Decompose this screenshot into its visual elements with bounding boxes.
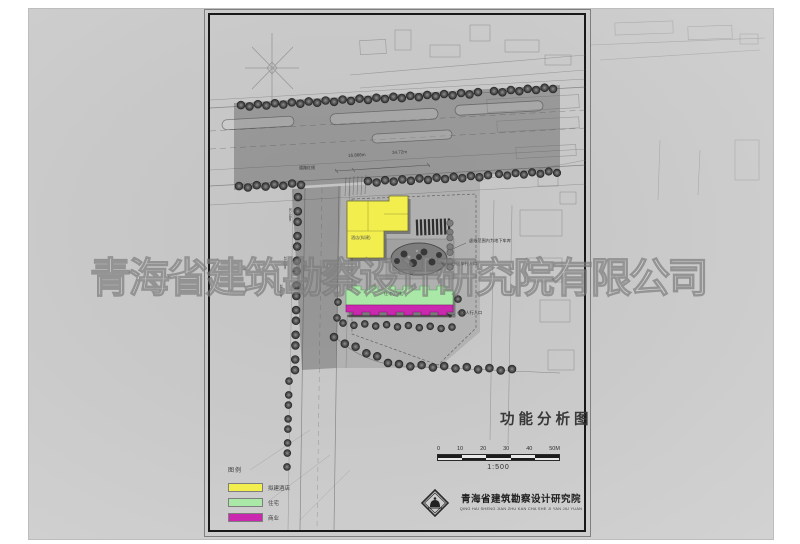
scale-tick: 50M bbox=[549, 446, 560, 452]
tree-icon bbox=[341, 340, 349, 348]
tree-icon bbox=[364, 96, 372, 104]
hotel-label: 酒店(拟建) bbox=[351, 236, 371, 240]
compass-icon bbox=[245, 33, 299, 103]
tree-icon bbox=[406, 362, 414, 370]
tree-icon bbox=[398, 175, 406, 183]
tree-icon bbox=[383, 321, 390, 328]
tree-icon bbox=[458, 174, 466, 182]
tree-icon bbox=[254, 100, 262, 108]
legend-item: 商业 bbox=[228, 513, 290, 522]
tree-icon bbox=[484, 171, 492, 179]
scale-tick: 0 bbox=[437, 446, 440, 452]
legend-label: 拟建酒店 bbox=[268, 484, 290, 492]
scale-segment bbox=[462, 458, 486, 461]
tree-icon bbox=[381, 95, 389, 103]
tree-icon bbox=[398, 94, 406, 102]
tree-icon bbox=[284, 450, 291, 457]
tree-icon bbox=[449, 324, 456, 331]
tree-icon bbox=[389, 93, 397, 101]
tree-icon bbox=[447, 220, 453, 226]
tree-icon bbox=[545, 168, 553, 176]
tree-icon bbox=[246, 102, 254, 110]
tree-icon bbox=[507, 86, 515, 94]
tree-icon bbox=[415, 175, 423, 183]
tree-icon bbox=[350, 322, 357, 329]
tree-icon bbox=[524, 85, 532, 93]
tree-icon bbox=[440, 90, 448, 98]
tree-icon bbox=[297, 181, 305, 189]
tree-icon bbox=[291, 366, 299, 374]
tree-icon bbox=[463, 363, 471, 371]
tree-icon bbox=[244, 184, 252, 192]
legend-swatch bbox=[228, 483, 263, 492]
scale-segment bbox=[535, 458, 559, 461]
scale-ratio: 1:500 bbox=[437, 464, 560, 471]
institute-name: 青海省建筑勘察设计研究院 bbox=[456, 495, 586, 506]
tree-icon bbox=[515, 87, 523, 95]
tree-icon bbox=[537, 170, 545, 178]
tree-icon bbox=[390, 178, 398, 186]
tree-icon bbox=[452, 364, 460, 372]
tree-icon bbox=[474, 365, 482, 373]
legend-swatch bbox=[228, 513, 263, 522]
tree-icon bbox=[293, 232, 301, 240]
legend: 图例 拟建酒店住宅商业 bbox=[228, 465, 290, 528]
tree-icon bbox=[373, 352, 381, 360]
tree-icon bbox=[296, 100, 304, 108]
parking-bars bbox=[416, 218, 451, 235]
tree-icon bbox=[490, 87, 498, 95]
tree-icon bbox=[294, 218, 302, 226]
tree-icon bbox=[292, 331, 300, 339]
legend-items: 拟建酒店住宅商业 bbox=[228, 483, 290, 522]
tree-icon bbox=[352, 343, 360, 351]
scale-bar-graphic bbox=[437, 454, 560, 461]
tree-icon bbox=[532, 86, 540, 94]
tree-icon bbox=[459, 309, 466, 316]
tree-icon bbox=[292, 306, 300, 314]
tree-icon bbox=[271, 99, 279, 107]
tree-icon bbox=[415, 93, 423, 101]
tree-icon bbox=[418, 361, 426, 369]
tree-icon bbox=[416, 324, 423, 331]
scale-tick-labels: 01020304050M bbox=[437, 446, 560, 452]
tree-icon bbox=[284, 426, 291, 433]
tree-icon bbox=[334, 314, 341, 321]
scale-tick: 20 bbox=[480, 446, 486, 452]
company-watermark: 青海省建筑勘察设计研究院有限公司 bbox=[90, 244, 730, 304]
legend-label: 商业 bbox=[268, 514, 279, 522]
tree-icon bbox=[395, 360, 403, 368]
tree-icon bbox=[235, 182, 243, 190]
tree-icon bbox=[362, 349, 370, 357]
scale-tick: 40 bbox=[526, 446, 532, 452]
tree-icon bbox=[262, 102, 270, 110]
tree-icon bbox=[279, 101, 287, 109]
legend-label: 住宅 bbox=[268, 499, 279, 507]
tree-icon bbox=[440, 362, 448, 370]
tree-icon bbox=[330, 333, 338, 341]
tree-icon bbox=[253, 181, 261, 189]
tree-icon bbox=[294, 193, 302, 201]
tree-icon bbox=[512, 169, 520, 177]
scale-tick: 10 bbox=[457, 446, 463, 452]
tree-icon bbox=[423, 91, 431, 99]
tree-icon bbox=[286, 378, 293, 385]
institute-pinyin: QING HAI SHENG JIAN ZHU KAN CHA SHE JI Y… bbox=[456, 507, 586, 511]
tree-icon bbox=[288, 98, 296, 106]
tree-icon bbox=[407, 177, 415, 185]
tree-icon bbox=[356, 95, 364, 103]
tree-icon bbox=[429, 363, 437, 371]
tree-icon bbox=[372, 94, 380, 102]
tree-icon bbox=[294, 207, 302, 215]
legend-title: 图例 bbox=[228, 465, 290, 474]
tree-icon bbox=[467, 172, 475, 180]
tree-icon bbox=[549, 85, 557, 93]
tree-icon bbox=[553, 169, 561, 177]
tree-icon bbox=[262, 183, 270, 191]
tree-icon bbox=[449, 91, 457, 99]
legend-item: 住宅 bbox=[228, 498, 290, 507]
tree-icon bbox=[424, 176, 432, 184]
tree-icon bbox=[372, 323, 379, 330]
tree-icon bbox=[373, 179, 381, 187]
tree-icon bbox=[284, 439, 291, 446]
tree-icon bbox=[498, 88, 506, 96]
tree-icon bbox=[508, 365, 516, 373]
legend-swatch bbox=[228, 498, 263, 507]
tree-icon bbox=[330, 98, 338, 106]
scale-bar: 01020304050M 1:500 bbox=[437, 446, 560, 471]
scanned-drawing-page: 道路红线16.866m34.72m50.98m15.00m16.00m虚线范围内… bbox=[0, 0, 800, 544]
tree-icon bbox=[285, 391, 292, 398]
tree-icon bbox=[313, 99, 321, 107]
tree-icon bbox=[285, 402, 292, 409]
tree-icon bbox=[270, 180, 278, 188]
tree-icon bbox=[433, 174, 441, 182]
institute-logo-icon bbox=[420, 488, 450, 518]
tree-icon bbox=[347, 97, 355, 105]
legend-item: 拟建酒店 bbox=[228, 483, 290, 492]
tree-icon bbox=[485, 364, 493, 372]
scale-segment bbox=[438, 458, 462, 461]
tree-icon bbox=[405, 322, 412, 329]
institute-title-block: 青海省建筑勘察设计研究院 QING HAI SHENG JIAN ZHU KAN… bbox=[420, 488, 588, 518]
tree-icon bbox=[279, 182, 287, 190]
tree-icon bbox=[541, 84, 549, 92]
tree-icon bbox=[528, 169, 536, 177]
tree-icon bbox=[384, 359, 392, 367]
tree-icon bbox=[447, 235, 453, 241]
tree-icon bbox=[339, 96, 347, 104]
tree-icon bbox=[322, 97, 330, 105]
tree-icon bbox=[305, 97, 313, 105]
tree-icon bbox=[292, 317, 300, 325]
tree-icon bbox=[361, 320, 368, 327]
tree-icon bbox=[475, 173, 483, 181]
scale-segment bbox=[511, 458, 535, 461]
tree-icon bbox=[520, 171, 528, 179]
tree-icon bbox=[291, 341, 299, 349]
tree-icon bbox=[466, 90, 474, 98]
tree-icon bbox=[291, 356, 299, 364]
tree-icon bbox=[441, 175, 449, 183]
scale-tick: 30 bbox=[503, 446, 509, 452]
tree-icon bbox=[406, 92, 414, 100]
tree-icon bbox=[497, 366, 505, 374]
tree-icon bbox=[474, 88, 482, 96]
tree-icon bbox=[394, 323, 401, 330]
tree-icon bbox=[364, 177, 372, 185]
tree-icon bbox=[432, 92, 440, 100]
tree-icon bbox=[504, 172, 512, 180]
drawing-title: 功能分析图 bbox=[500, 408, 593, 429]
tree-icon bbox=[495, 170, 503, 178]
scale-segment bbox=[486, 458, 510, 461]
tree-icon bbox=[285, 415, 292, 422]
tree-icon bbox=[450, 173, 458, 181]
tree-icon bbox=[381, 176, 389, 184]
tree-icon bbox=[457, 89, 465, 97]
tree-icon bbox=[237, 101, 245, 109]
tree-icon bbox=[427, 323, 434, 330]
tree-icon bbox=[288, 180, 296, 188]
tree-icon bbox=[340, 320, 347, 327]
tree-icon bbox=[438, 325, 445, 332]
context-sketch-right bbox=[590, 21, 765, 200]
